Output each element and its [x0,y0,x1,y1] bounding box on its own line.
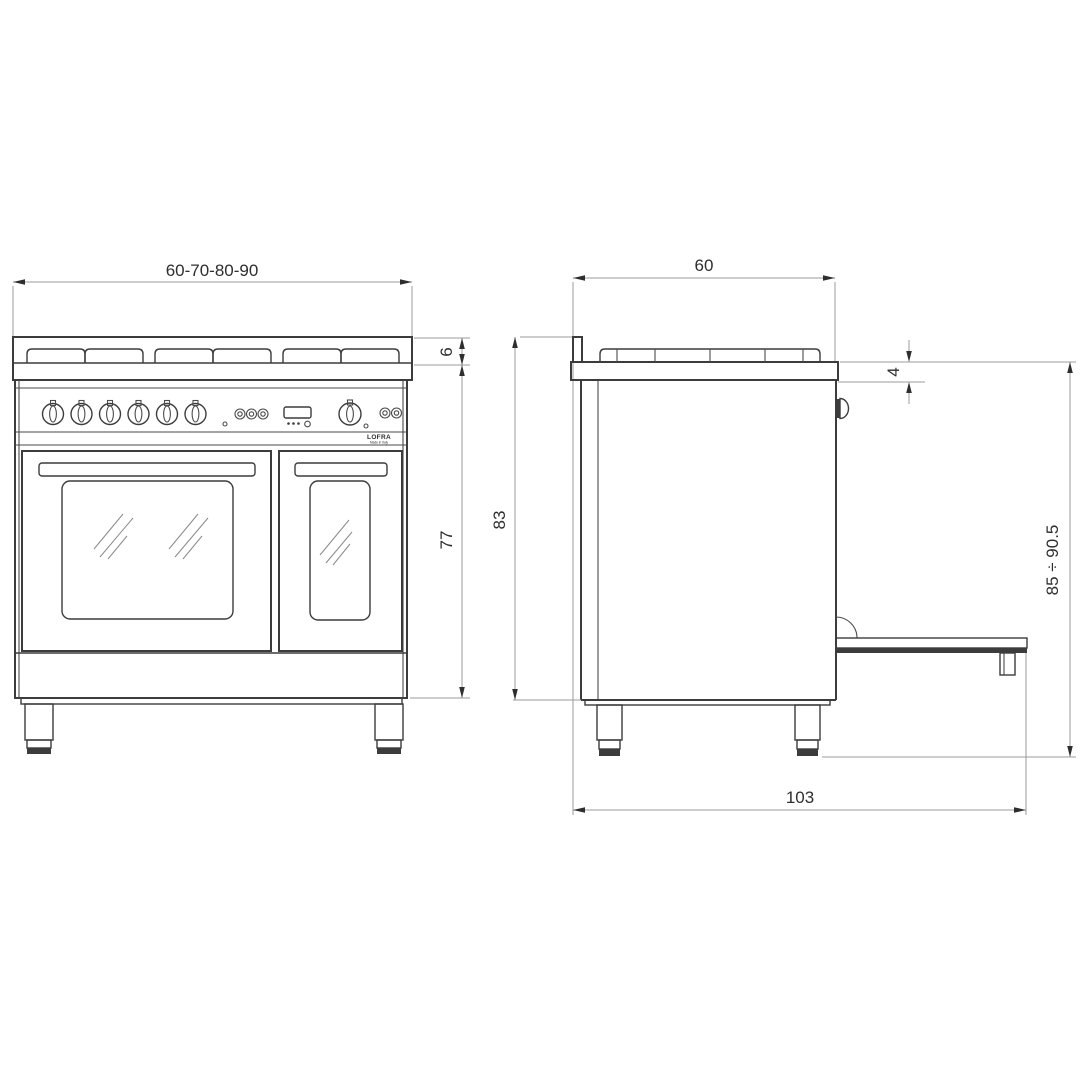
dim-depth-open: 103 [573,653,1026,815]
door-swing-arc [836,617,857,638]
burner-knob [100,401,121,425]
front-left-leg [25,704,53,754]
oven-knob [339,400,361,425]
backsplash [573,337,582,362]
burner-knob [185,401,206,425]
dim-side-height-label: 83 [490,511,509,530]
glass-reflections [94,514,352,565]
panel-pilot-dot [223,422,227,426]
open-oven-door [836,617,1027,675]
front-view: LOFRA Made in Italy [13,337,412,754]
dim-hob-edge-label: 6 [437,347,456,356]
side-worktop [571,337,838,380]
dim-body-height-label: 77 [437,531,456,550]
pan-support-profile [600,349,820,362]
burner-knob [157,401,178,425]
clock-display [284,407,311,427]
control-panel: LOFRA Made in Italy [43,400,402,445]
dim-depth: 60 [573,256,835,361]
pan-supports [27,349,399,363]
dim-overall-height: 85 ÷ 90.5 [822,362,1076,757]
second-oven-glass [310,481,370,620]
side-front-leg [795,705,820,756]
burner-knob [128,401,149,425]
oven-doors [15,451,407,653]
open-door-handle [1000,653,1015,675]
front-base [21,698,403,754]
front-right-leg [375,704,403,754]
hob-band [13,337,412,380]
dim-depth-open-label: 103 [786,788,814,807]
technical-drawing: LOFRA Made in Italy [0,0,1080,1080]
burner-knobs [43,401,207,425]
burner-knob [43,401,64,425]
side-back-leg [597,705,622,756]
dim-body-height: 77 [410,365,470,698]
dim-width: 60-70-80-90 [13,261,412,336]
dim-worktop-label: 4 [884,367,903,376]
knob-profile [837,399,849,419]
drawing-page: LOFRA Made in Italy [0,0,1080,1080]
dim-overall-height-label: 85 ÷ 90.5 [1043,525,1062,596]
dim-worktop: 4 [838,340,1076,404]
dim-side-height: 83 [490,337,581,700]
side-body [581,380,849,705]
second-oven-handle [295,463,387,476]
dim-width-label: 60-70-80-90 [166,261,259,280]
side-base [597,705,820,756]
oven-lights [380,408,402,418]
brand-origin: Made in Italy [370,441,388,445]
indicator-lights [235,409,268,419]
brand-logo: LOFRA Made in Italy [367,434,391,445]
main-oven-glass [62,481,233,619]
dim-hob-edge: 6 [414,338,470,365]
panel-pilot-dot [364,424,368,428]
burner-knob [71,401,92,425]
main-oven-handle [39,463,255,476]
side-dimensions: 60 83 4 85 ÷ 90.5 [490,256,1076,815]
dim-depth-label: 60 [695,256,714,275]
